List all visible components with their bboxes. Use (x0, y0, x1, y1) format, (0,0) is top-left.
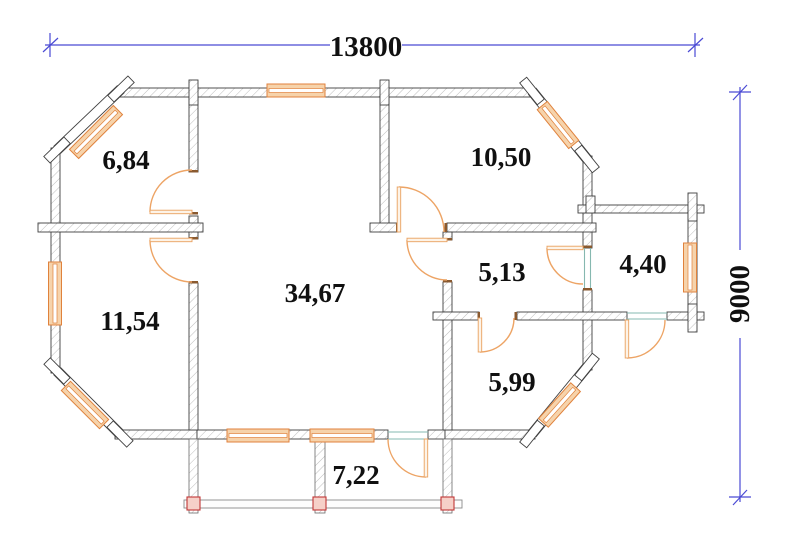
wall-interior-horizontal-left (38, 223, 203, 232)
window-annex-right (684, 243, 697, 292)
dimension-width-label: 13800 (330, 31, 403, 63)
porch-footing-3 (441, 497, 454, 510)
log-stub-annex-tl (586, 196, 595, 213)
wall-interior-513-b (443, 282, 452, 312)
wall-interior-599 (443, 312, 452, 430)
porch-footing-2 (313, 497, 326, 510)
wall-interior-mid-a (433, 312, 479, 320)
floor-plan-canvas: 13800 9000 6,84 10,50 11,54 34,67 5,13 4… (0, 0, 800, 547)
wall-bottom-center-b (428, 430, 445, 439)
wall-interior-left-c (189, 283, 198, 430)
log-stub-annex-tr (688, 193, 697, 221)
wall-interior-1050-a (370, 223, 398, 232)
room-area-label-722: 7,22 (332, 460, 379, 490)
wall-interior-left-a (189, 97, 198, 172)
room-area-label-1050: 10,50 (471, 142, 532, 172)
window-bottom-1 (227, 429, 289, 442)
porch-footing-1 (187, 497, 200, 510)
background (0, 0, 800, 547)
log-stub-top-1 (189, 80, 198, 105)
room-area-label-440: 4,40 (619, 249, 666, 279)
window-bottom-2 (310, 429, 374, 442)
wall-interior-1050-b (447, 223, 596, 232)
floor-plan-page: 13800 9000 6,84 10,50 11,54 34,67 5,13 4… (0, 0, 800, 547)
wall-interior-mid-c (667, 312, 704, 320)
dimension-height-label: 9000 (724, 265, 756, 323)
wall-interior-center (380, 97, 389, 232)
room-area-label-513: 5,13 (478, 257, 525, 287)
wall-interior-mid-b (517, 312, 627, 320)
wall-bottom-right (445, 430, 535, 439)
room-area-label-3467: 34,67 (285, 278, 346, 308)
room-area-label-599: 5,99 (488, 367, 535, 397)
window-left (49, 262, 62, 325)
log-stub-annex-br (688, 304, 697, 332)
window-top (267, 84, 325, 97)
room-area-label-1154: 11,54 (100, 306, 159, 336)
wall-annex-top (578, 205, 704, 213)
wall-top (118, 88, 534, 97)
room-area-label-684: 6,84 (102, 145, 149, 175)
log-stub-top-2 (380, 80, 389, 105)
